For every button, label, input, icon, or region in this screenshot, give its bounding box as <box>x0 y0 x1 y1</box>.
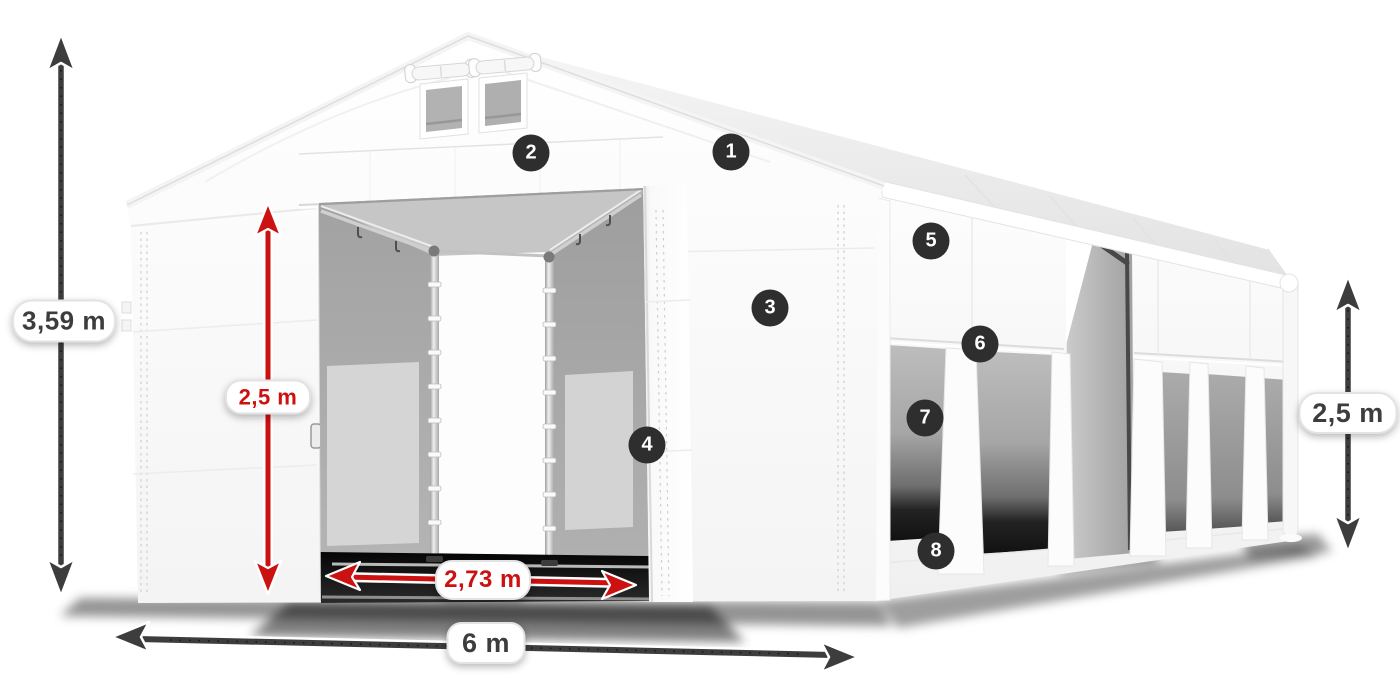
callout-badge-3: 3 <box>752 290 789 327</box>
door-handle <box>311 424 321 448</box>
callout-badge-1: 1 <box>713 134 750 171</box>
entrance-interior <box>315 184 655 608</box>
dim-label-side-height: 2,5 m <box>1299 392 1398 434</box>
diagram-stage: 3,59 m 2,5 m 2,73 m 6 m 2,5 m 1 2 3 4 5 … <box>0 0 1400 700</box>
callout-badge-7: 7 <box>907 400 944 437</box>
dim-label-entrance-width: 2,73 m <box>435 560 531 600</box>
callout-badge-6: 6 <box>962 326 999 363</box>
dim-label-tent-width-text: 6 m <box>462 628 510 659</box>
dim-label-side-height-text: 2,5 m <box>1312 398 1384 429</box>
dim-label-entrance-height-text: 2,5 m <box>239 384 298 410</box>
dim-label-total-height-text: 3,59 m <box>22 306 106 337</box>
front-door-panel <box>643 184 693 602</box>
dim-label-entrance-width-text: 2,73 m <box>444 566 522 594</box>
dim-label-entrance-height: 2,5 m <box>225 380 311 415</box>
dim-label-tent-width: 6 m <box>447 622 526 664</box>
tent-illustration <box>0 0 1400 700</box>
callout-badge-2: 2 <box>513 135 550 172</box>
interior-window-left <box>327 362 419 546</box>
side-entrance-opening <box>1066 232 1134 559</box>
callout-badge-4: 4 <box>629 427 666 464</box>
callout-badge-5: 5 <box>913 223 950 260</box>
rear-door-see-through <box>436 246 547 556</box>
callout-badge-8: 8 <box>918 533 955 570</box>
interior-window-right <box>565 371 633 530</box>
rear-corner-post <box>1283 275 1298 537</box>
dim-label-total-height: 3,59 m <box>12 300 116 343</box>
